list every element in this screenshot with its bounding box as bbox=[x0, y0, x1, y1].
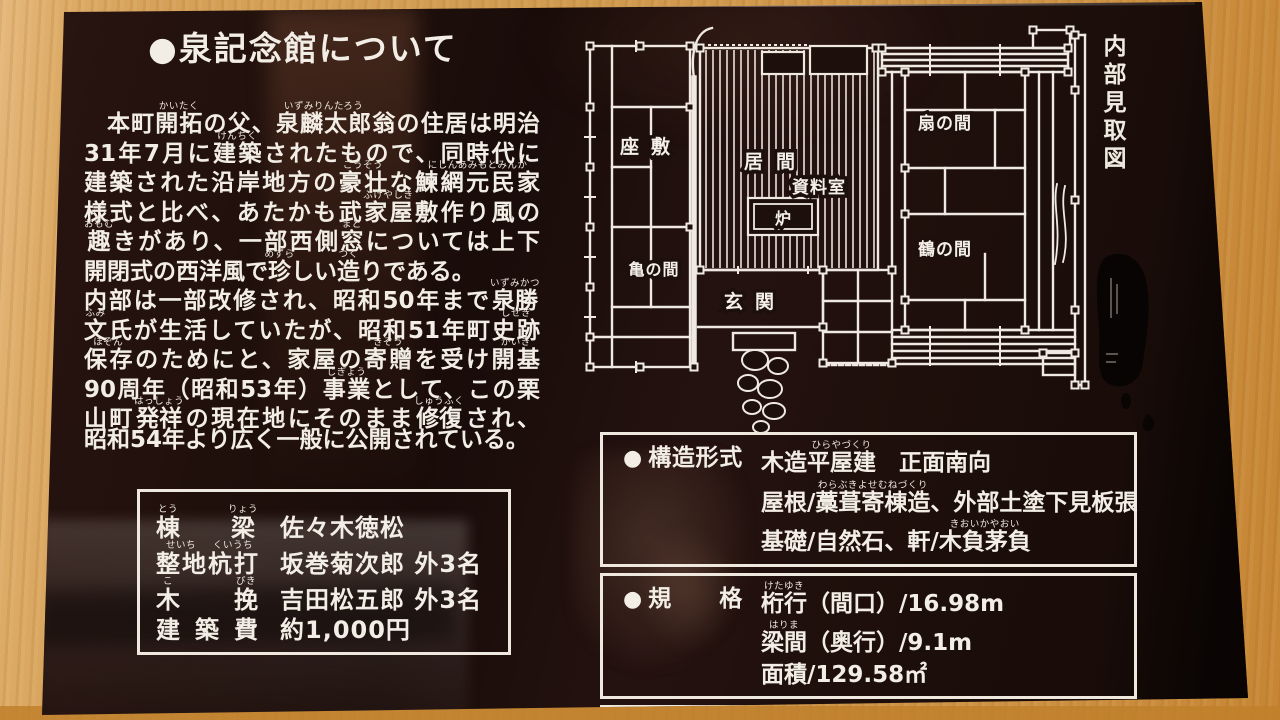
credit-row: 棟とう梁りょう 佐々木徳松 bbox=[156, 504, 492, 540]
spec-line: 木造平屋建ひらやづくり 正面南向 bbox=[761, 440, 1137, 480]
room-label-shiryoshitsu: 資料室 bbox=[792, 177, 846, 198]
specs-box: ● 構造形式 木造平屋建ひらやづくり 正面南向 屋根/藁葺寄棟造わらぶきよせむね… bbox=[600, 432, 1137, 720]
credit-label: 建築費 bbox=[156, 612, 258, 648]
sign-title: ●泉記念館について bbox=[148, 22, 458, 70]
spec-section-structure: ● 構造形式 木造平屋建ひらやづくり 正面南向 屋根/藁葺寄棟造わらぶきよせむね… bbox=[600, 432, 1137, 567]
room-label-genkan: 玄関 bbox=[724, 290, 786, 313]
room-label-ouginoma: 扇の間 bbox=[918, 113, 972, 134]
spec-line: 面積/129.58㎡ bbox=[761, 660, 1126, 692]
about-line: 昭和54年より広く一般に公開されている。 bbox=[84, 426, 540, 456]
about-paragraph: 本町開拓かいたくの父、泉麟太郎いずみりんたろう翁の住居は明治 31年7月に建築け… bbox=[84, 101, 540, 455]
spec-label: 規格 bbox=[648, 584, 742, 692]
floorplan-caption: 内部見取図 bbox=[1095, 34, 1129, 174]
credit-row: 木こ挽びき 吉田松五郎 外3名 bbox=[156, 576, 492, 612]
bullet-icon: ● bbox=[623, 443, 642, 559]
bullet-icon: ● bbox=[623, 584, 642, 692]
credits-box: 棟とう梁りょう 佐々木徳松 整地せいち杭打くいうち 坂巻菊次郎 外3名 木こ挽び… bbox=[137, 489, 511, 655]
spec-line: 屋根/藁葺寄棟造わらぶきよせむねづくり、外部土塗下見板張 bbox=[761, 480, 1137, 520]
plaque: ●泉記念館について 本町開拓かいたくの父、泉麟太郎いずみりんたろう翁の住居は明治… bbox=[0, 0, 1280, 720]
pillar-markers bbox=[587, 27, 1089, 389]
spec-line: 梁間はりま（奥行）/9.1m bbox=[761, 620, 1126, 660]
room-label-tsurunoma: 鶴の間 bbox=[918, 239, 972, 260]
room-label-ima: 居間 bbox=[744, 151, 808, 173]
paint-damage-blob bbox=[1086, 244, 1178, 444]
floorplan-walls bbox=[590, 28, 1085, 385]
spec-line: 桁行けたゆき（間口）/16.98m bbox=[761, 581, 1126, 621]
room-label-ro: 炉 bbox=[775, 209, 791, 228]
credit-value: 約1,000円 bbox=[280, 612, 411, 648]
stepping-stones bbox=[738, 350, 788, 433]
photo-of-sign: ●泉記念館について 本町開拓かいたくの父、泉麟太郎いずみりんたろう翁の住居は明治… bbox=[0, 0, 1280, 720]
room-label-kamenoma: 亀の間 bbox=[628, 260, 679, 279]
credit-row: 建築費 約1,000円 bbox=[156, 612, 492, 648]
spec-section-dimensions: ● 規格 桁行けたゆき（間口）/16.98m 梁間はりま（奥行）/9.1m 面積… bbox=[600, 573, 1137, 700]
room-label-zashiki: 座敷 bbox=[620, 135, 682, 158]
spec-line: 基礎/自然石、軒/木負茅負きおいかやおい bbox=[761, 519, 1137, 559]
floorplan-diagram: 座敷 亀の間 居間 資料室 炉 玄関 扇の間 鶴の間 bbox=[578, 24, 1090, 436]
about-line: 本町開拓かいたくの父、泉麟太郎いずみりんたろう翁の住居は明治 bbox=[84, 101, 540, 131]
closets-and-hearth bbox=[748, 46, 867, 235]
spec-label: 構造形式 bbox=[648, 443, 742, 559]
credit-row: 整地せいち杭打くいうち 坂巻菊次郎 外3名 bbox=[156, 540, 492, 576]
